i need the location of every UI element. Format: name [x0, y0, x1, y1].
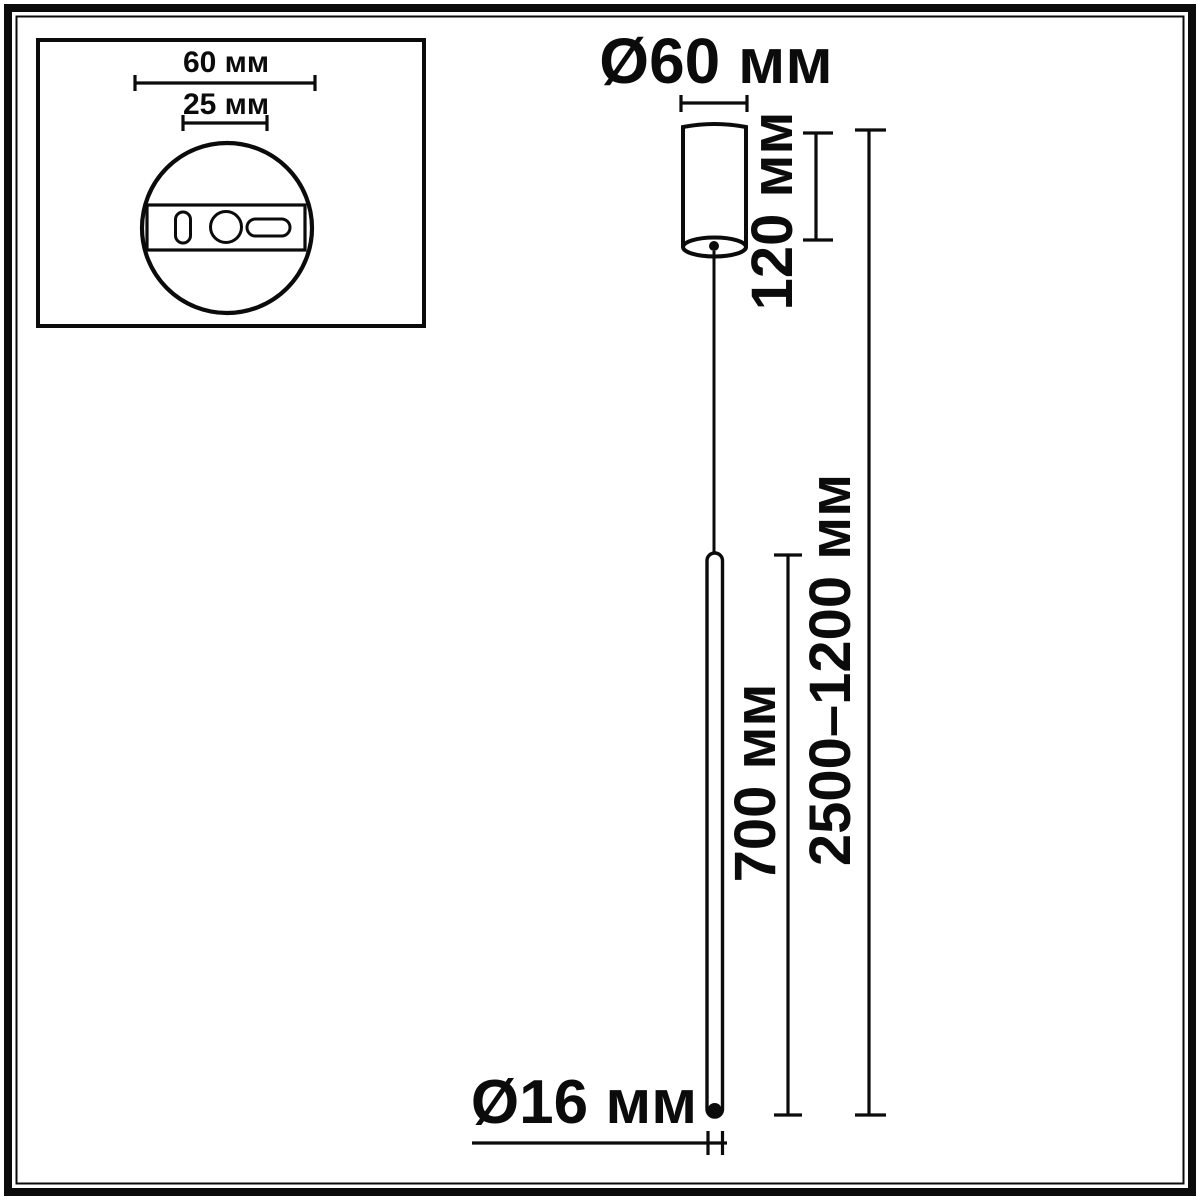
canopy-body: [683, 124, 746, 247]
tube-diameter-label: Ø16 мм: [471, 1072, 697, 1134]
diagram-canvas: 60 мм 25 мм Ø60 мм 120 мм 700 мм 2500–12…: [0, 0, 1200, 1200]
canopy-height-label: 120 мм: [744, 112, 802, 311]
canopy-diameter-label: Ø60 мм: [599, 29, 832, 93]
lamp-tube-length-label: 700 мм: [727, 684, 785, 883]
diagram-linework: [0, 0, 1200, 1200]
canopy-height-dim-line: [803, 133, 833, 240]
inset-plate-width-label: 60 мм: [183, 48, 269, 78]
outer-frame: [8, 8, 1192, 1192]
canopy-diameter-dim-line: [681, 95, 747, 112]
inner-frame: [17, 17, 1184, 1184]
lamp-tube: [707, 553, 723, 1117]
wire-attachment-dot: [709, 241, 719, 251]
overall-height-range-label: 2500–1200 мм: [802, 474, 860, 866]
lamp-tube-tip: [708, 1103, 722, 1117]
inset-plate-inner-width-label: 25 мм: [183, 90, 269, 120]
